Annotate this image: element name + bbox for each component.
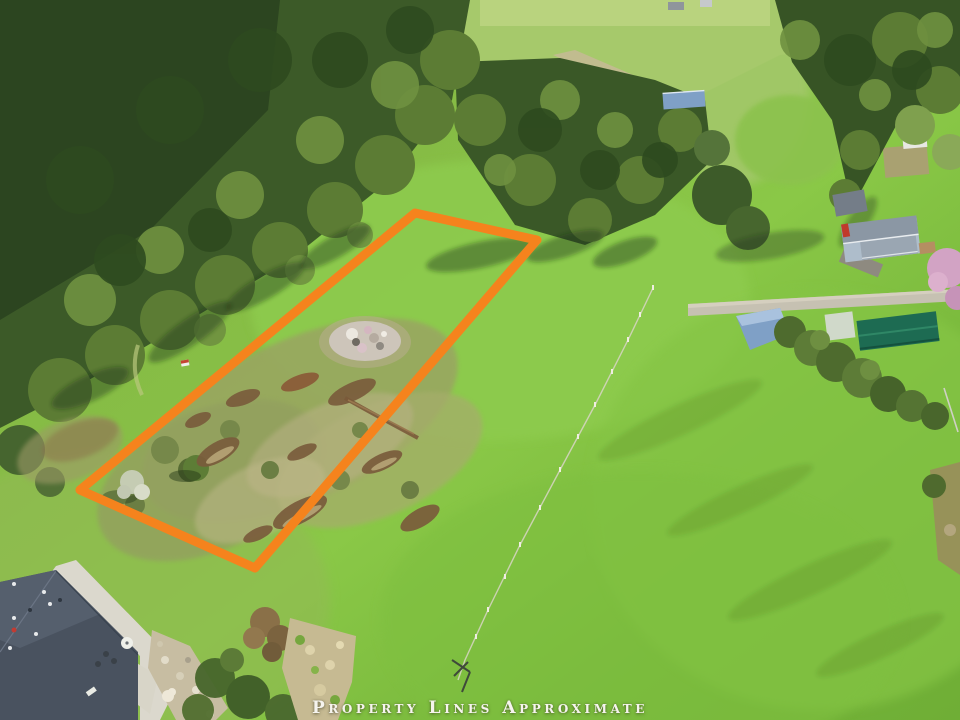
caption-overlay: Property Lines Approximate xyxy=(0,698,960,718)
photo-canvas xyxy=(0,0,960,720)
debris-pile xyxy=(319,316,411,368)
garden-plot xyxy=(883,144,929,178)
deciduous-trees xyxy=(895,105,935,145)
aerial-photo: Property Lines Approximate xyxy=(0,0,960,720)
blue-tarp-top xyxy=(662,91,705,110)
deck xyxy=(919,241,936,254)
red-roof-item xyxy=(12,628,17,633)
